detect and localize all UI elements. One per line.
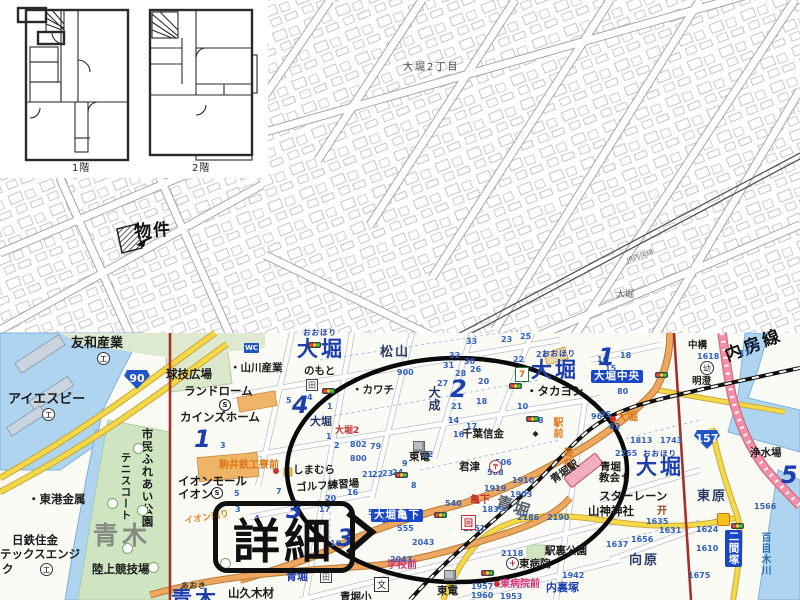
map-label: ・タカヨシ [526, 386, 584, 398]
map-label-layer: 大堀2丁目大堀JR内房線友和産業アイエスビー・東港金属日鉄住金テックスエンジク陸… [0, 0, 800, 600]
route-shield: 157 [694, 430, 720, 449]
map-label: 東電 [437, 586, 458, 597]
lot-number: 1635 [646, 517, 668, 526]
busstop-label: 駒井鉄工寮前 [219, 461, 279, 471]
gas-icon [717, 513, 730, 526]
factory-icon: 工 [42, 408, 55, 421]
tl-icon [308, 342, 321, 348]
lot-number: 2255 [615, 449, 637, 458]
dot-icon [610, 416, 616, 422]
map-label: 浄水場 [750, 448, 782, 459]
map-label: 中構 [688, 341, 707, 351]
lot-number: 2043 [390, 555, 412, 564]
map-label: 向原 [629, 554, 659, 567]
tree-icon [148, 562, 159, 573]
lot-number: 27 [437, 379, 448, 388]
tl-icon [322, 388, 335, 394]
map-label: アイエスビー [8, 393, 85, 406]
busstop-label: 大堀 [616, 411, 638, 422]
tl-icon [434, 512, 447, 518]
lot-number: 20 [478, 377, 489, 386]
district-label: 大堀 [636, 457, 684, 478]
tl-icon [526, 416, 539, 422]
intersection-label: 大堀中央 [591, 370, 643, 383]
dot-icon [273, 468, 279, 474]
lot-number: 1624 [696, 525, 718, 534]
tl-icon [509, 383, 522, 389]
map-label: 日鉄住金 [12, 535, 58, 547]
map-label: おおほり [303, 329, 337, 337]
cube-icon [413, 441, 425, 452]
map-label: 青堀 [600, 462, 621, 473]
lot-number: 82 [609, 422, 620, 431]
map-label: 東原 [697, 490, 727, 503]
lot-number: 1953 [500, 592, 522, 600]
map-label: テックスエンジ [0, 549, 80, 561]
lot-number: 14 [448, 416, 459, 425]
map-label: 大堀 [616, 291, 634, 300]
store-icon: S [219, 399, 231, 411]
lot-number: 18 [476, 397, 487, 406]
seven-icon: 7 [515, 367, 529, 382]
lot-number: 16 [453, 430, 464, 439]
tl-icon [481, 570, 494, 576]
torii-icon: 开 [657, 504, 667, 514]
map-label: 青堀小 [340, 592, 372, 600]
lot-number: 5 [286, 396, 292, 405]
block-number: 1 [598, 343, 615, 371]
lot-number: 1919 [484, 484, 506, 493]
lot-number: 17 [466, 422, 477, 431]
lot-number: 1566 [754, 502, 776, 511]
lot-number: 800 [350, 454, 367, 463]
property-callout: 物件 [133, 215, 173, 243]
kind-icon: 幼 [700, 361, 714, 375]
lot-number: 33 [466, 337, 477, 346]
map-label: 君津 [459, 462, 480, 473]
scanned-flyer-page: 大堀2丁目大堀JR内房線友和産業アイエスビー・東港金属日鉄住金テックスエンジク陸… [0, 0, 800, 600]
map-label: 大堀2 [335, 427, 359, 436]
lot-number: 80 [617, 387, 628, 396]
lot-number: 3 [220, 441, 226, 450]
lot-number: 1610 [696, 544, 718, 553]
lot-number: 1656 [631, 535, 653, 544]
lot-number: 8 [411, 481, 417, 490]
map-label: のもと [304, 366, 335, 377]
map-label: 駅裏公園 [545, 546, 587, 557]
tl-icon [655, 372, 668, 378]
cube-icon [444, 570, 456, 581]
lot-number: 10 [517, 402, 528, 411]
factory-icon: 工 [40, 563, 53, 576]
dot-icon [494, 581, 500, 587]
lot-number: 1 [327, 402, 333, 411]
lot-number: 22 [513, 355, 524, 364]
lot-number: 1675 [688, 571, 710, 580]
lot-number: 1957 [471, 582, 493, 591]
lot-number: 555 [397, 524, 414, 533]
lot-number: 79 [370, 442, 381, 451]
map-label: 大堀 [310, 416, 332, 427]
lot-number: 802 [350, 440, 367, 449]
map-label: 明澄 [692, 377, 711, 387]
factory-icon: 工 [97, 352, 110, 365]
cadastral-rail-label: JR内房線 [626, 249, 655, 265]
lot-number: 31 [443, 361, 454, 370]
lot-number: 26 [470, 365, 481, 374]
spiral-icon: 回 [461, 515, 476, 530]
block-number: 1 [194, 425, 211, 453]
lot-number: 2186 [517, 513, 539, 522]
map-label: 東病院 [519, 559, 551, 570]
lot-number: 1910 [512, 476, 534, 485]
map-label: ・カワチ [352, 385, 394, 396]
wc-icon: WC [244, 343, 259, 353]
map-label: 大成 [428, 386, 440, 412]
map-label: ・山川産業 [230, 363, 283, 374]
lot-number: 7 [276, 487, 282, 496]
lot-number: 25 [520, 332, 531, 341]
lot-number: 1637 [606, 540, 628, 549]
tree-icon [133, 443, 144, 454]
busstop-label: 東病院前 [500, 580, 540, 590]
detail-callout: 詳細 [213, 501, 355, 573]
block-number: 2 [450, 375, 467, 403]
district-label: 大堀 [297, 339, 345, 360]
map-label: イオンモール [178, 476, 247, 488]
floor1-label: 1階 [72, 164, 90, 174]
map-label: 内裏塚 [546, 582, 579, 593]
lot-number: 9 [402, 459, 408, 468]
lot-number: 2 [334, 441, 340, 450]
detail-arrow [340, 503, 386, 565]
map-label: ク [2, 564, 14, 576]
floor2-label: 2階 [192, 164, 210, 174]
lot-number: 540 [445, 499, 462, 508]
lot-number: 2043 [412, 538, 434, 547]
map-label: ランドローム [184, 386, 253, 398]
map-label: 青木 [171, 589, 219, 600]
hosp-icon: + [506, 557, 519, 570]
tree-icon [137, 505, 148, 516]
map-label: 山神神社 [588, 506, 634, 518]
map-label: 山久木材 [228, 588, 274, 600]
tl-icon [731, 523, 744, 529]
map-label: イオン [178, 489, 213, 501]
cadastral-district-label: 大堀2丁目 [403, 63, 459, 73]
block-number: 4 [292, 391, 309, 419]
school-icon: 文 [374, 577, 389, 592]
tl-icon [395, 472, 408, 478]
lot-number: 21 [536, 350, 547, 359]
map-label: 教会✝ [599, 473, 629, 484]
route-shield: 90 [124, 370, 150, 389]
map-label: 友和産業 [71, 337, 123, 350]
lot-number: 2190 [547, 513, 569, 522]
map-label: しまむら [293, 465, 335, 476]
lot-number: 1618 [697, 352, 719, 361]
lot-number: 900 [397, 368, 414, 377]
field-icon: 田 [306, 379, 318, 391]
map-label: ・東港金属 [28, 494, 86, 506]
lot-number: 17 [739, 349, 750, 358]
intersection-label: 二間塚 [725, 530, 742, 567]
lot-number: 32 [449, 351, 460, 360]
lot-number: 1813 [630, 436, 652, 445]
district-label: 青木 [93, 523, 151, 548]
lot-number: 5 [234, 489, 240, 498]
lot-number: 1743 [660, 436, 682, 445]
post-icon: 〒 [489, 460, 502, 473]
lot-number: 18 [620, 351, 631, 360]
tree-icon [122, 543, 133, 554]
lot-number: 1631 [659, 526, 681, 535]
lot-number: 1839 [482, 505, 504, 514]
map-label: テニスコート [120, 452, 131, 521]
lot-number: 13 [746, 340, 757, 349]
map-label: 松山 [380, 346, 410, 359]
river-label: 百目木川 [759, 532, 769, 576]
map-label: カインズホーム [180, 412, 260, 424]
district-label: 大堀 [531, 360, 579, 381]
lot-number: 1942 [562, 571, 584, 580]
tree-icon [107, 498, 118, 509]
busstop-label: 駅前 [551, 417, 561, 439]
lot-number: 23 [501, 335, 512, 344]
lot-number: 16 [347, 488, 358, 497]
store-icon: S [211, 487, 223, 499]
lot-number: 1903 [510, 490, 532, 499]
lot-number: 1 [326, 432, 332, 441]
lot-number: 21 [451, 402, 462, 411]
map-label: 陸上競技場 [92, 564, 150, 576]
map-label: 球技広場 [166, 369, 212, 381]
block-number: 5 [781, 461, 798, 489]
bank-icon: ◆ [531, 429, 540, 438]
lot-number: 1960 [471, 591, 493, 600]
